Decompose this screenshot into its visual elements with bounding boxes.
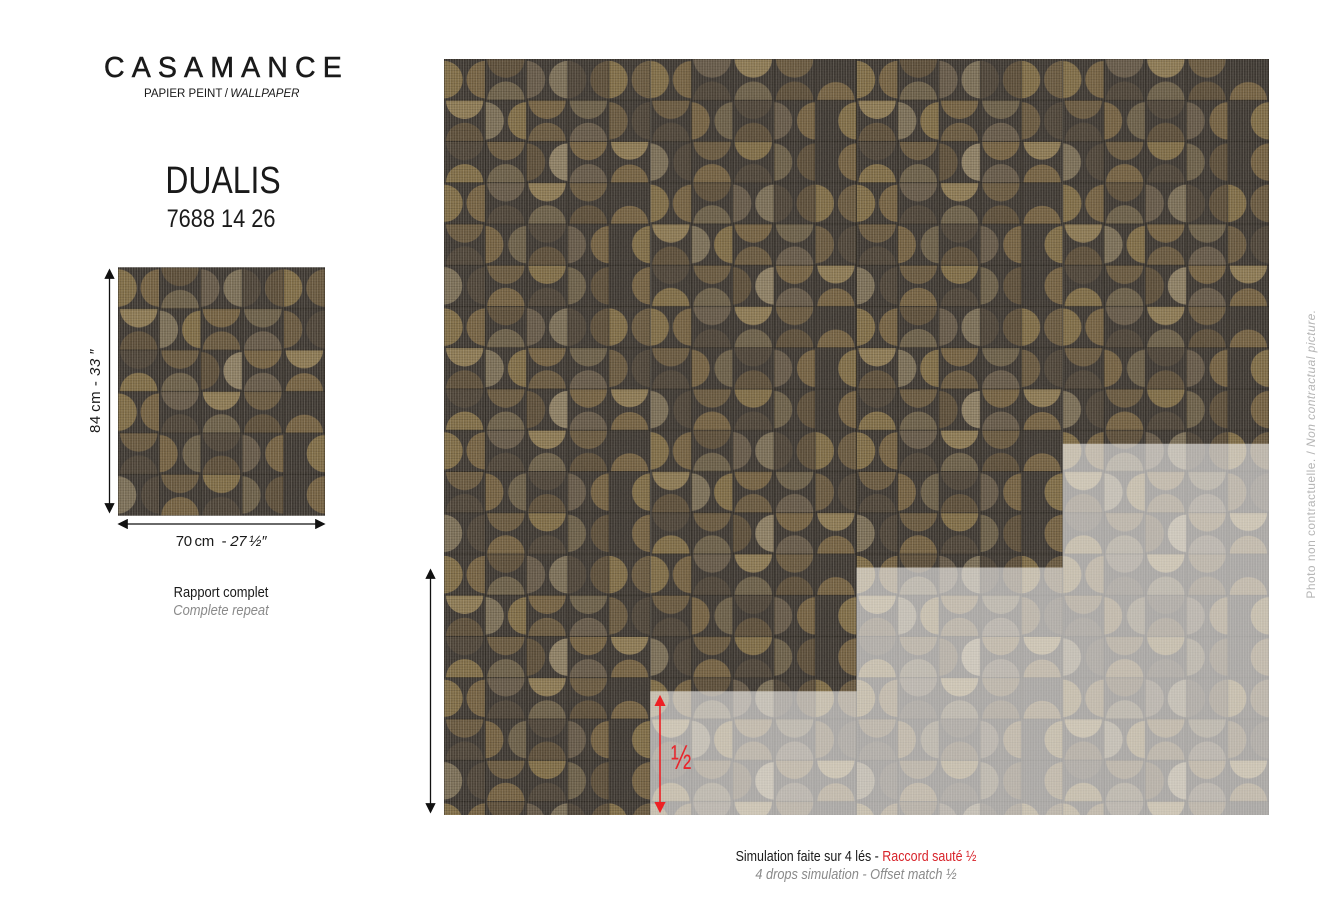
svg-text:½: ½	[671, 739, 691, 777]
